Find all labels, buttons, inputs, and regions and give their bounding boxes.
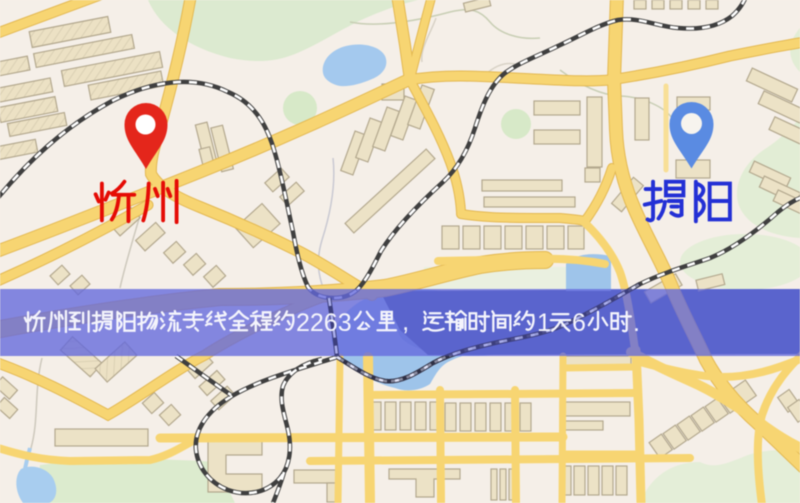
svg-text:.: . [633,309,640,337]
svg-text:2263: 2263 [296,309,352,337]
svg-text:1: 1 [537,309,551,337]
svg-text:,: , [402,306,409,336]
svg-text:6: 6 [572,309,586,337]
